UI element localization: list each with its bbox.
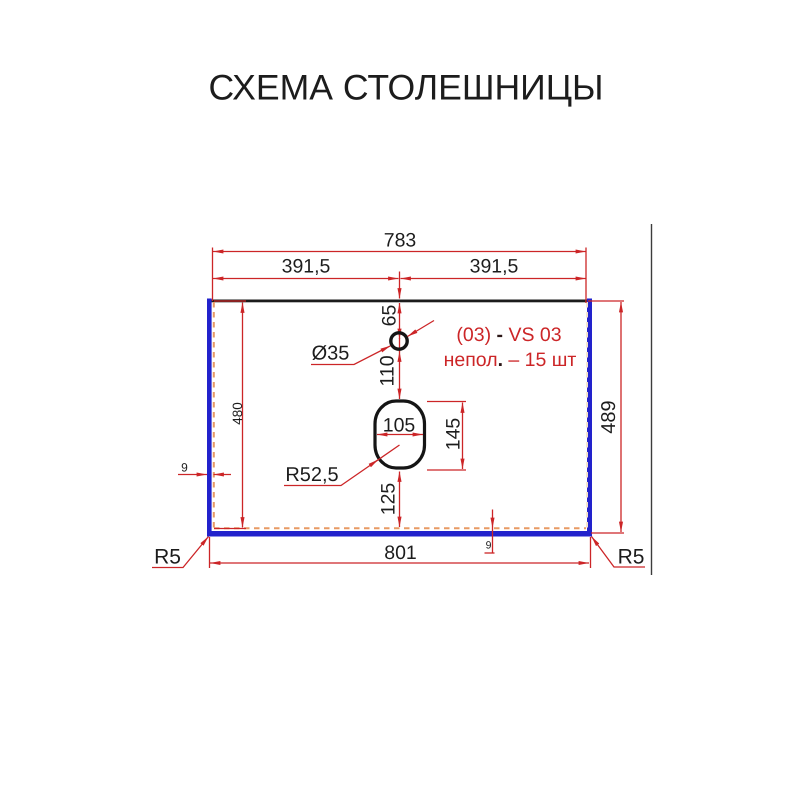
svg-text:непол. – 15 шт: непол. – 15 шт bbox=[444, 349, 577, 371]
svg-text:Ø35: Ø35 bbox=[312, 343, 350, 365]
svg-text:R5: R5 bbox=[618, 546, 645, 569]
svg-text:489: 489 bbox=[598, 400, 620, 433]
svg-text:65: 65 bbox=[379, 305, 401, 327]
svg-text:801: 801 bbox=[384, 542, 417, 564]
svg-text:391,5: 391,5 bbox=[470, 256, 519, 278]
svg-text:783: 783 bbox=[384, 230, 417, 252]
svg-text:9: 9 bbox=[486, 540, 492, 552]
svg-text:(03) - VS 03: (03) - VS 03 bbox=[456, 324, 561, 346]
svg-text:125: 125 bbox=[378, 483, 400, 516]
svg-text:105: 105 bbox=[383, 415, 416, 437]
svg-text:110: 110 bbox=[377, 355, 399, 386]
svg-text:9: 9 bbox=[181, 461, 188, 475]
svg-text:391,5: 391,5 bbox=[282, 256, 331, 278]
svg-text:480: 480 bbox=[230, 402, 245, 425]
svg-text:R5: R5 bbox=[154, 546, 181, 569]
svg-text:145: 145 bbox=[443, 418, 465, 451]
svg-text:СХЕМА СТОЛЕШНИЦЫ: СХЕМА СТОЛЕШНИЦЫ bbox=[208, 68, 603, 108]
svg-text:R52,5: R52,5 bbox=[285, 464, 338, 486]
